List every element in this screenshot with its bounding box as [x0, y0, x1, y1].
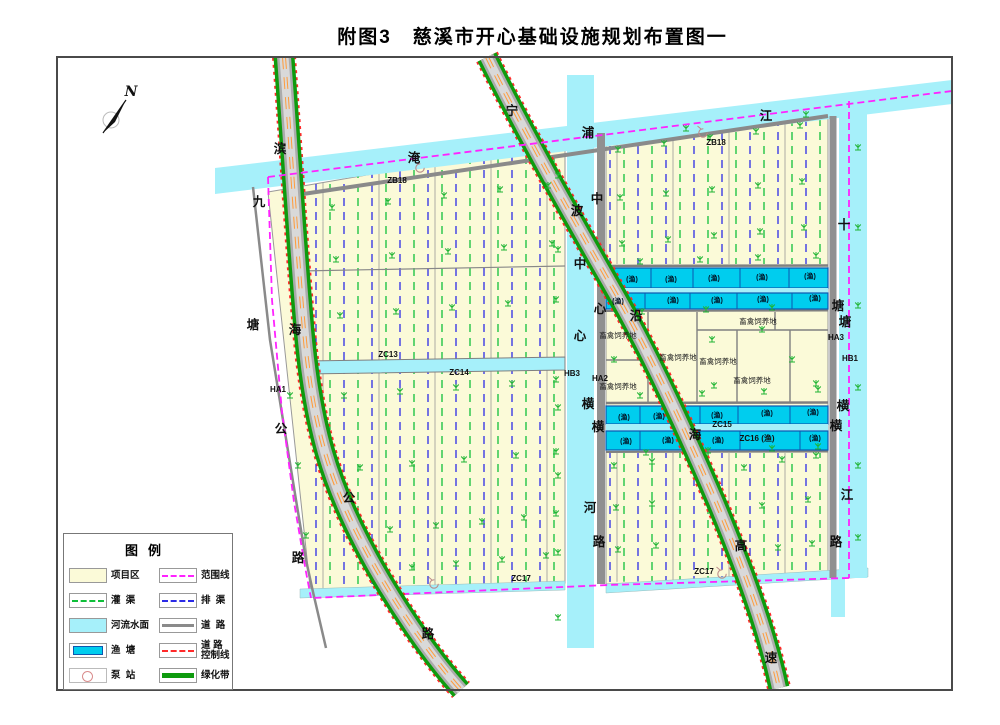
pond-label: (渔) — [667, 296, 679, 305]
legend-label: 范围线 — [201, 571, 230, 581]
map-name-char: 速 — [765, 650, 778, 665]
legend-item-road: 道 路 — [154, 613, 230, 638]
map-name-char: 沿 — [629, 308, 643, 323]
legend-label: 道 路控制线 — [201, 641, 230, 661]
station-code-label: ZB18 — [706, 138, 726, 147]
legend-item-road-control-line: 道 路控制线 — [154, 638, 230, 663]
map-name-char: 横 — [837, 398, 850, 413]
legend-item-fish-pond: 渔 塘 — [64, 638, 154, 663]
bottom-canal-stub — [831, 577, 845, 617]
map-name-char: 路 — [830, 534, 843, 549]
map-name-char: 海 — [289, 322, 302, 337]
map-name-char: 滨 — [274, 141, 287, 156]
livestock-area-label: 畜禽饲养地 — [739, 316, 777, 326]
fish-pond-swatch — [69, 643, 107, 658]
legend-item-irrigation-canal: 灌 渠 — [64, 588, 154, 613]
map-name-char: 江 — [760, 108, 773, 123]
legend-label: 河流水面 — [111, 621, 149, 631]
station-code-label: HB1 — [842, 354, 859, 363]
map-name-char: 高 — [735, 538, 748, 553]
map-name-char: 中 — [591, 191, 604, 206]
station-code-label: HA3 — [828, 333, 845, 342]
pond-band-canal — [606, 288, 828, 293]
legend-item-pump-station: 泵 站 — [64, 663, 154, 688]
pump-station-swatch — [69, 668, 107, 683]
planning-map-page: 附图3 慈溪市开心基础设施规划布置图一 滨海公路九塘公路宁波沿海高速淹浦江中心横… — [0, 0, 1000, 725]
livestock-area-label: 畜禽饲养地 — [599, 330, 637, 340]
pond-label: (渔) — [807, 408, 819, 417]
north-label: N — [124, 84, 139, 100]
map-name-char: 塘 — [839, 314, 852, 329]
pond-label: (渔) — [711, 296, 723, 305]
map-name-char: 心 — [574, 328, 587, 343]
legend-item-river-surface: 河流水面 — [64, 613, 154, 638]
map-name-char: 波 — [571, 203, 584, 218]
map-name-char: 十 — [838, 217, 851, 232]
map-name-char: 河 — [584, 500, 597, 515]
legend-title: 图例 — [64, 534, 232, 559]
legend-label: 泵 站 — [111, 671, 135, 681]
map-name-char: 公 — [343, 490, 356, 505]
pond-label: (渔) — [653, 412, 665, 421]
pond-label: (渔) — [662, 436, 674, 445]
station-code-label: ZC15 — [712, 420, 732, 429]
legend-label: 灌 渠 — [111, 596, 135, 606]
station-code-label: ZC17 — [511, 574, 531, 583]
legend-label-line1: 道 路 — [201, 641, 230, 651]
project-area-swatch — [69, 568, 107, 583]
map-name-char: 江 — [841, 487, 854, 502]
map-name-char: 路 — [593, 534, 606, 549]
pond-label: (渔) — [756, 273, 768, 282]
map-name-char: 中 — [574, 256, 587, 271]
pond-label: (渔) — [761, 409, 773, 418]
station-code-label: ZC17 — [694, 567, 714, 576]
legend: 图例 项目区 范围线 灌 渠 排 渠 河流水面 — [63, 533, 233, 690]
map-name-char: 塘 — [247, 317, 260, 332]
legend-label: 排 渠 — [201, 596, 225, 606]
pond-label: (渔) — [708, 274, 720, 283]
road-swatch — [159, 618, 197, 633]
legend-item-green-belt: 绿化带 — [154, 663, 230, 688]
map-name-char: 海 — [689, 427, 702, 442]
legend-label: 渔 塘 — [111, 646, 135, 656]
map-name-char: 横 — [582, 396, 595, 411]
pond-label: (渔) — [757, 295, 769, 304]
pond-row-road — [606, 266, 828, 267]
legend-label: 道 路 — [201, 621, 225, 631]
river-surface-swatch — [69, 618, 107, 633]
pond-row-road — [606, 403, 828, 404]
pond-label: (渔) — [626, 275, 638, 284]
livestock-area-label: 畜禽饲养地 — [659, 352, 697, 362]
station-code-label: ZC14 — [449, 368, 469, 377]
pond-label: (渔) — [804, 272, 816, 281]
map-name-char: 九 — [252, 194, 266, 209]
drainage-canal-swatch — [159, 593, 197, 608]
map-name-char: 路 — [422, 626, 435, 641]
station-code-label: HB3 — [564, 369, 581, 378]
station-code-label: ZC16 (渔) — [739, 433, 774, 443]
map-name-char: 横 — [830, 418, 843, 433]
pond-label: (渔) — [809, 434, 821, 443]
livestock-area-label: 畜禽饲养地 — [733, 375, 771, 385]
map-name-char: 横 — [592, 419, 605, 434]
boundary-line-swatch — [159, 568, 197, 583]
map-name-char: 心 — [594, 301, 607, 316]
map-name-char: 宁 — [506, 103, 519, 118]
legend-item-boundary-line: 范围线 — [154, 563, 230, 588]
map-name-char: 公 — [275, 421, 288, 436]
legend-item-project-area: 项目区 — [64, 563, 154, 588]
station-code-label: ZC13 — [378, 350, 398, 359]
center-river — [567, 75, 594, 648]
map-name-char: 淹 — [408, 150, 421, 165]
pond-label: (渔) — [712, 436, 724, 445]
legend-item-drainage-canal: 排 渠 — [154, 588, 230, 613]
irrigation-canal-swatch — [69, 593, 107, 608]
station-code-label: ZB18 — [387, 176, 407, 185]
livestock-area-label: 畜禽饲养地 — [599, 381, 637, 391]
road-control-line-swatch — [159, 643, 197, 658]
livestock-area-label: 畜禽饲养地 — [699, 356, 737, 366]
pond-label: (渔) — [618, 413, 630, 422]
map-name-char: 浦 — [582, 125, 595, 140]
legend-grid: 项目区 范围线 灌 渠 排 渠 河流水面 道 路 — [64, 563, 232, 688]
green-belt-swatch — [159, 668, 197, 683]
pond-label: (渔) — [612, 297, 624, 306]
station-code-label: HA1 — [270, 385, 287, 394]
map-name-char: 塘 — [832, 298, 845, 313]
pond-label: (渔) — [620, 437, 632, 446]
pond-label: (渔) — [665, 275, 677, 284]
map-name-char: 路 — [292, 550, 305, 565]
legend-label: 绿化带 — [201, 671, 230, 681]
pond-row-road — [606, 452, 828, 453]
pond-label: (渔) — [809, 294, 821, 303]
pond-label: (渔) — [711, 411, 723, 420]
legend-label-line2: 控制线 — [201, 651, 230, 661]
legend-label: 项目区 — [111, 571, 140, 581]
